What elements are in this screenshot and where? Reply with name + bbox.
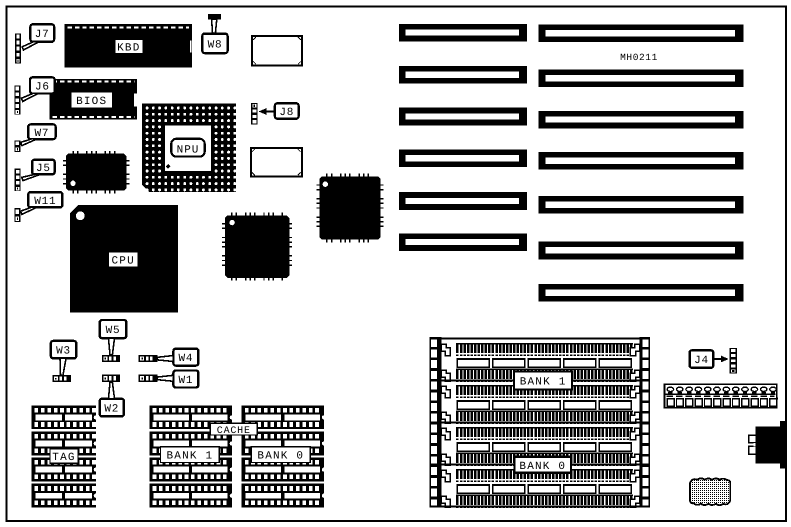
svg-text:W5: W5 xyxy=(106,325,121,337)
svg-text:W4: W4 xyxy=(178,353,193,365)
svg-text:TAG: TAG xyxy=(52,452,75,464)
svg-text:J8: J8 xyxy=(279,107,294,119)
svg-text:J6: J6 xyxy=(35,82,50,94)
svg-text:CACHE: CACHE xyxy=(217,426,251,437)
svg-text:KBD: KBD xyxy=(117,42,140,54)
svg-text:NPU: NPU xyxy=(177,144,200,156)
svg-text:BANK 1: BANK 1 xyxy=(520,377,567,389)
svg-text:W8: W8 xyxy=(208,39,223,51)
svg-text:J4: J4 xyxy=(694,355,709,367)
svg-text:W1: W1 xyxy=(178,375,193,387)
svg-text:BANK 1: BANK 1 xyxy=(166,451,213,463)
svg-text:W3: W3 xyxy=(56,346,71,358)
svg-text:BANK 0: BANK 0 xyxy=(257,451,304,463)
svg-text:W11: W11 xyxy=(34,196,56,208)
svg-text:J7: J7 xyxy=(35,29,50,41)
svg-text:CPU: CPU xyxy=(111,255,134,267)
svg-text:W2: W2 xyxy=(104,404,119,416)
svg-text:J5: J5 xyxy=(36,163,51,175)
svg-text:W7: W7 xyxy=(34,128,49,140)
svg-text:BIOS: BIOS xyxy=(76,96,107,108)
svg-text:BANK 0: BANK 0 xyxy=(519,461,566,473)
svg-text:MH0211: MH0211 xyxy=(620,52,658,63)
